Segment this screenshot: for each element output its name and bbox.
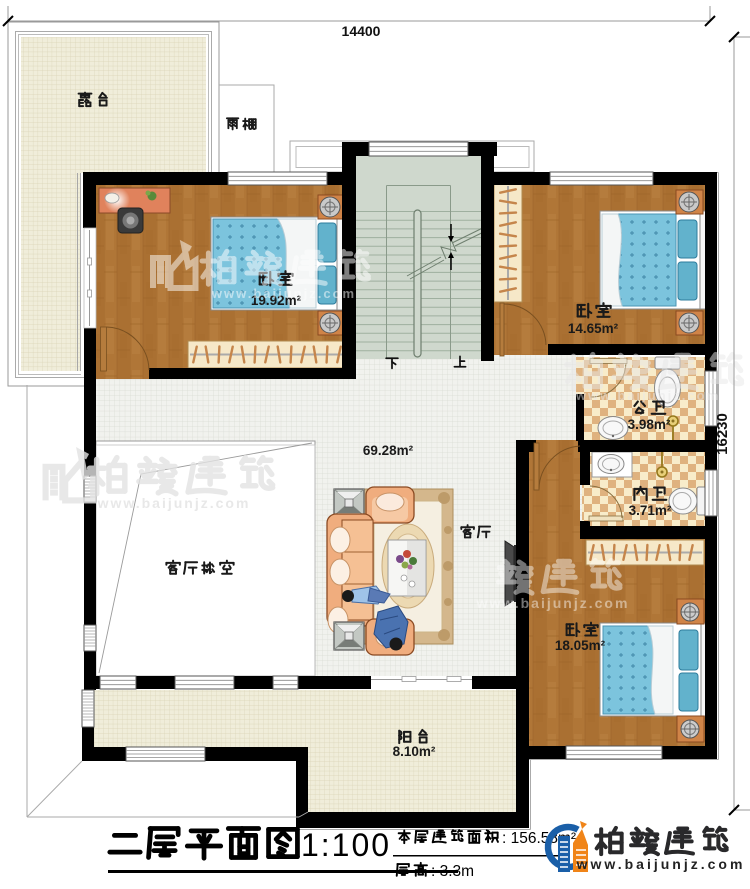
svg-text:14.65m²: 14.65m² <box>568 321 619 336</box>
svg-text:3.98m²: 3.98m² <box>628 417 671 432</box>
svg-text:www.baijunjz.com: www.baijunjz.com <box>575 388 720 403</box>
svg-text:69.28m²: 69.28m² <box>363 443 414 458</box>
svg-text:16230: 16230 <box>714 413 731 455</box>
svg-text:www.baijunjz.com: www.baijunjz.com <box>476 595 630 611</box>
svg-text:3.71m²: 3.71m² <box>629 503 672 518</box>
svg-text:www.baijunjz.com: www.baijunjz.com <box>211 286 356 301</box>
svg-text:: 3.3m: : 3.3m <box>431 863 474 880</box>
svg-text:18.05m²: 18.05m² <box>555 638 606 653</box>
svg-text:14400: 14400 <box>342 23 381 39</box>
svg-text:www.baijunjz.com: www.baijunjz.com <box>576 856 746 872</box>
svg-text:8.10m²: 8.10m² <box>393 744 436 759</box>
svg-text:www.baijunjz.com: www.baijunjz.com <box>97 495 251 511</box>
svg-text:1:100: 1:100 <box>301 827 391 863</box>
